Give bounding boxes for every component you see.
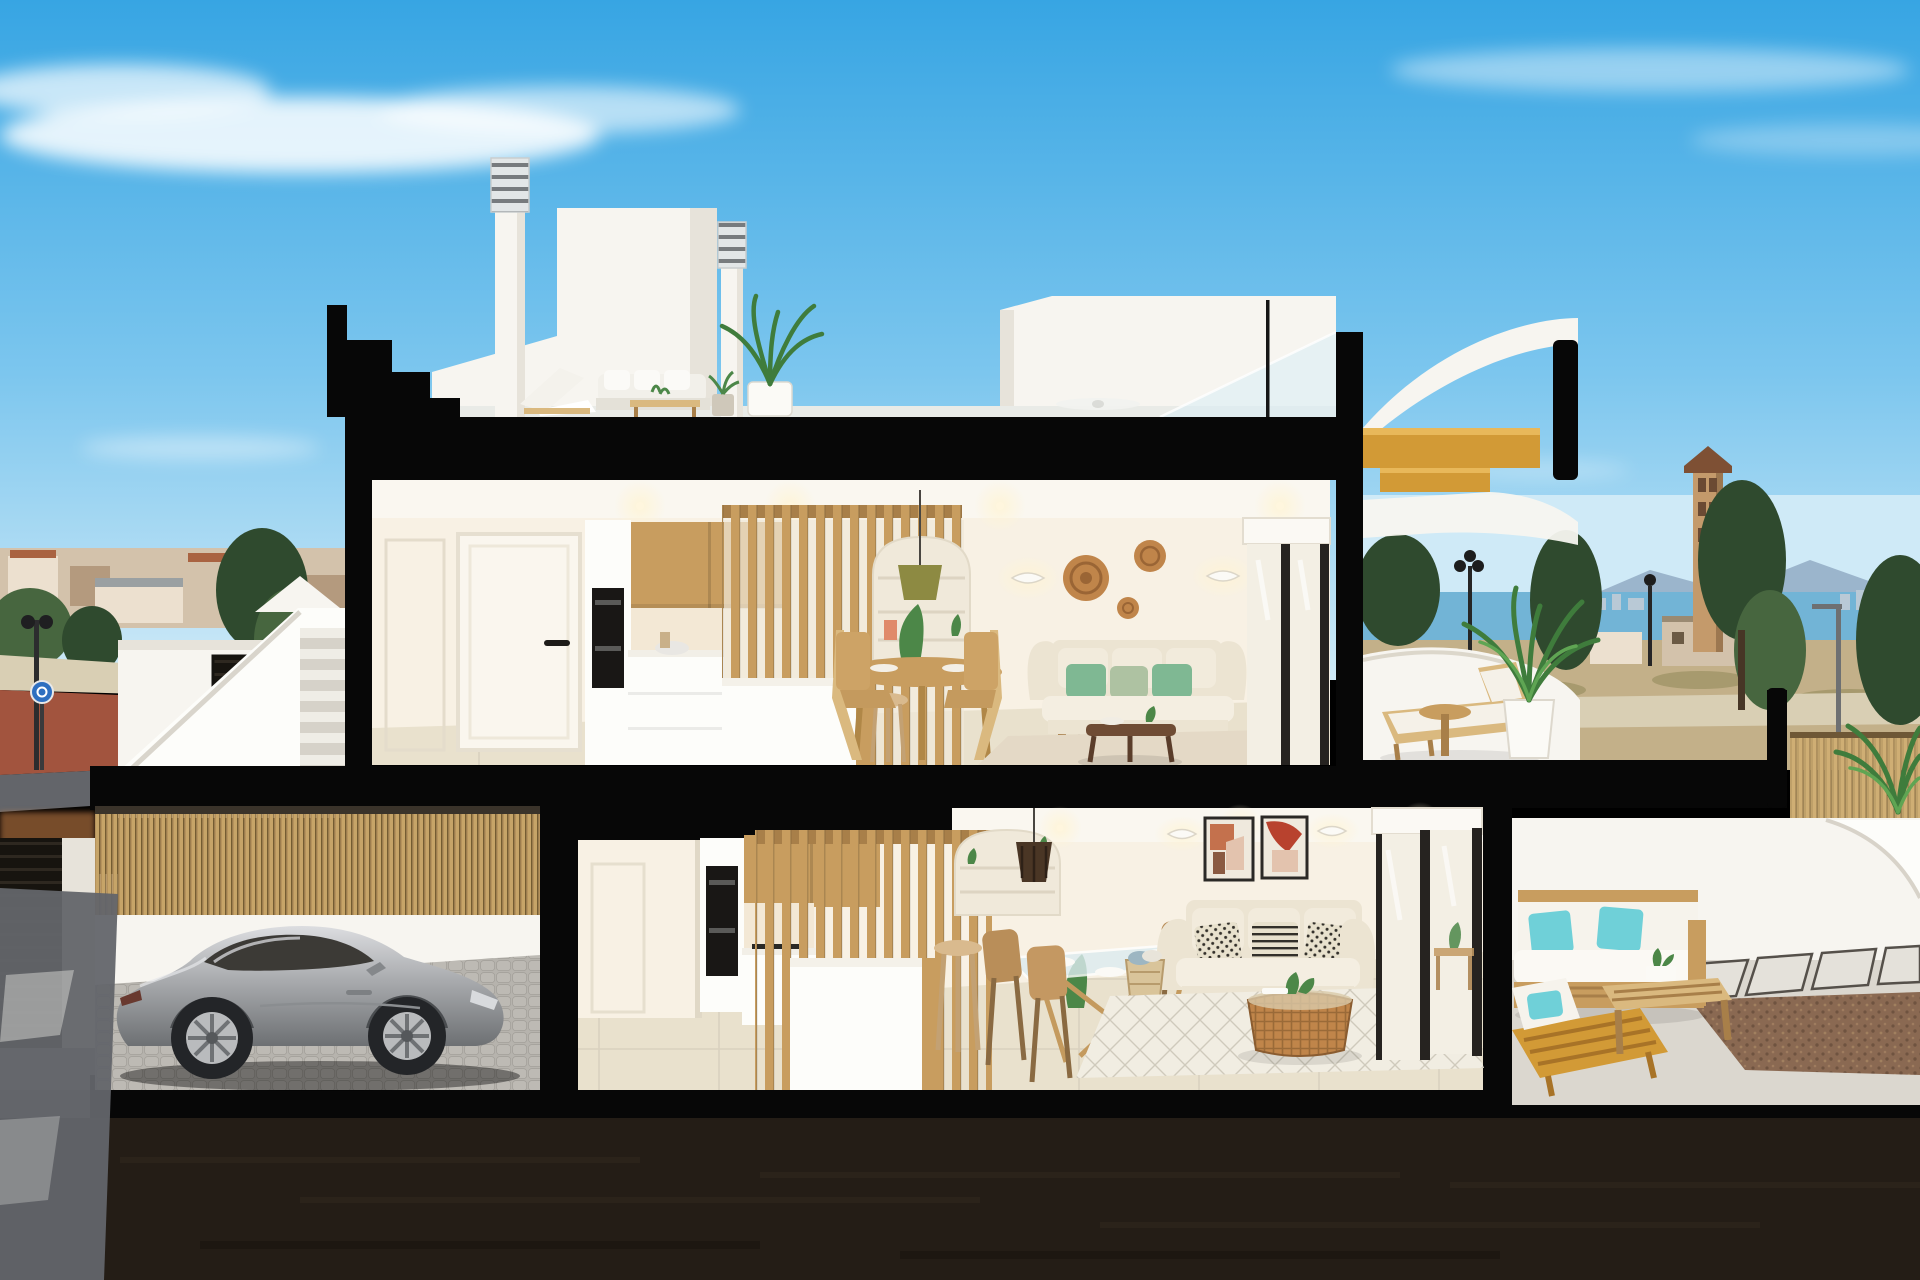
bamboo-rail xyxy=(95,806,540,814)
sliding-doors-ground xyxy=(1372,808,1482,1060)
cut-left-wall xyxy=(345,417,372,817)
cut-right-column-upper xyxy=(1336,332,1363,808)
cushion-green xyxy=(1066,664,1106,698)
car-wheel-front xyxy=(368,997,446,1075)
base-drawers xyxy=(628,657,724,765)
bench-planter xyxy=(1646,966,1676,980)
garage xyxy=(95,806,540,1091)
cut-garage-column xyxy=(540,808,578,1090)
chimney-louver-cap xyxy=(491,158,529,212)
jar xyxy=(660,632,670,648)
pendant-shade-olive xyxy=(898,565,942,600)
chimney-large xyxy=(491,158,529,417)
foreground-road-overlay xyxy=(0,888,118,1280)
roof-sofa xyxy=(596,370,710,417)
cushion-green-2 xyxy=(1152,664,1192,698)
palm-pot xyxy=(1504,700,1554,758)
cut-terrace-stub xyxy=(1767,688,1787,808)
cushion-sage xyxy=(1110,666,1148,698)
car-wheel-rear xyxy=(171,997,253,1079)
kitchen-island-ground xyxy=(790,958,935,1090)
car-door-handle xyxy=(346,990,372,995)
upper-floor xyxy=(372,480,1330,769)
cut-mid-slab xyxy=(90,766,1363,810)
cut-ground-column-right xyxy=(1483,808,1512,1090)
ground-floor xyxy=(578,802,1484,1090)
car-shadow xyxy=(120,1061,520,1091)
bamboo-fence xyxy=(95,810,540,918)
chimney-louver-cap-2 xyxy=(718,222,746,268)
teal-pillow-1 xyxy=(1528,910,1574,956)
scene-canvas xyxy=(0,0,1920,1280)
door-handle xyxy=(544,640,570,646)
cut-roof-slab xyxy=(345,417,1341,480)
cut-roof-block-right xyxy=(1553,340,1578,480)
teal-pillow-2 xyxy=(1596,906,1643,952)
roller-shade-box xyxy=(1243,518,1330,544)
ground-hallway-wall xyxy=(578,840,702,1018)
sliding-door-upper xyxy=(1243,518,1330,765)
vase-coral xyxy=(884,620,897,640)
chimney-small xyxy=(718,222,746,417)
interior-door xyxy=(458,534,580,750)
roof-ceiling-fan xyxy=(1056,398,1140,410)
architectural-cutaway-render xyxy=(0,0,1920,1280)
balustrade-post xyxy=(1266,300,1270,417)
sofa-arm-right xyxy=(1216,641,1246,700)
